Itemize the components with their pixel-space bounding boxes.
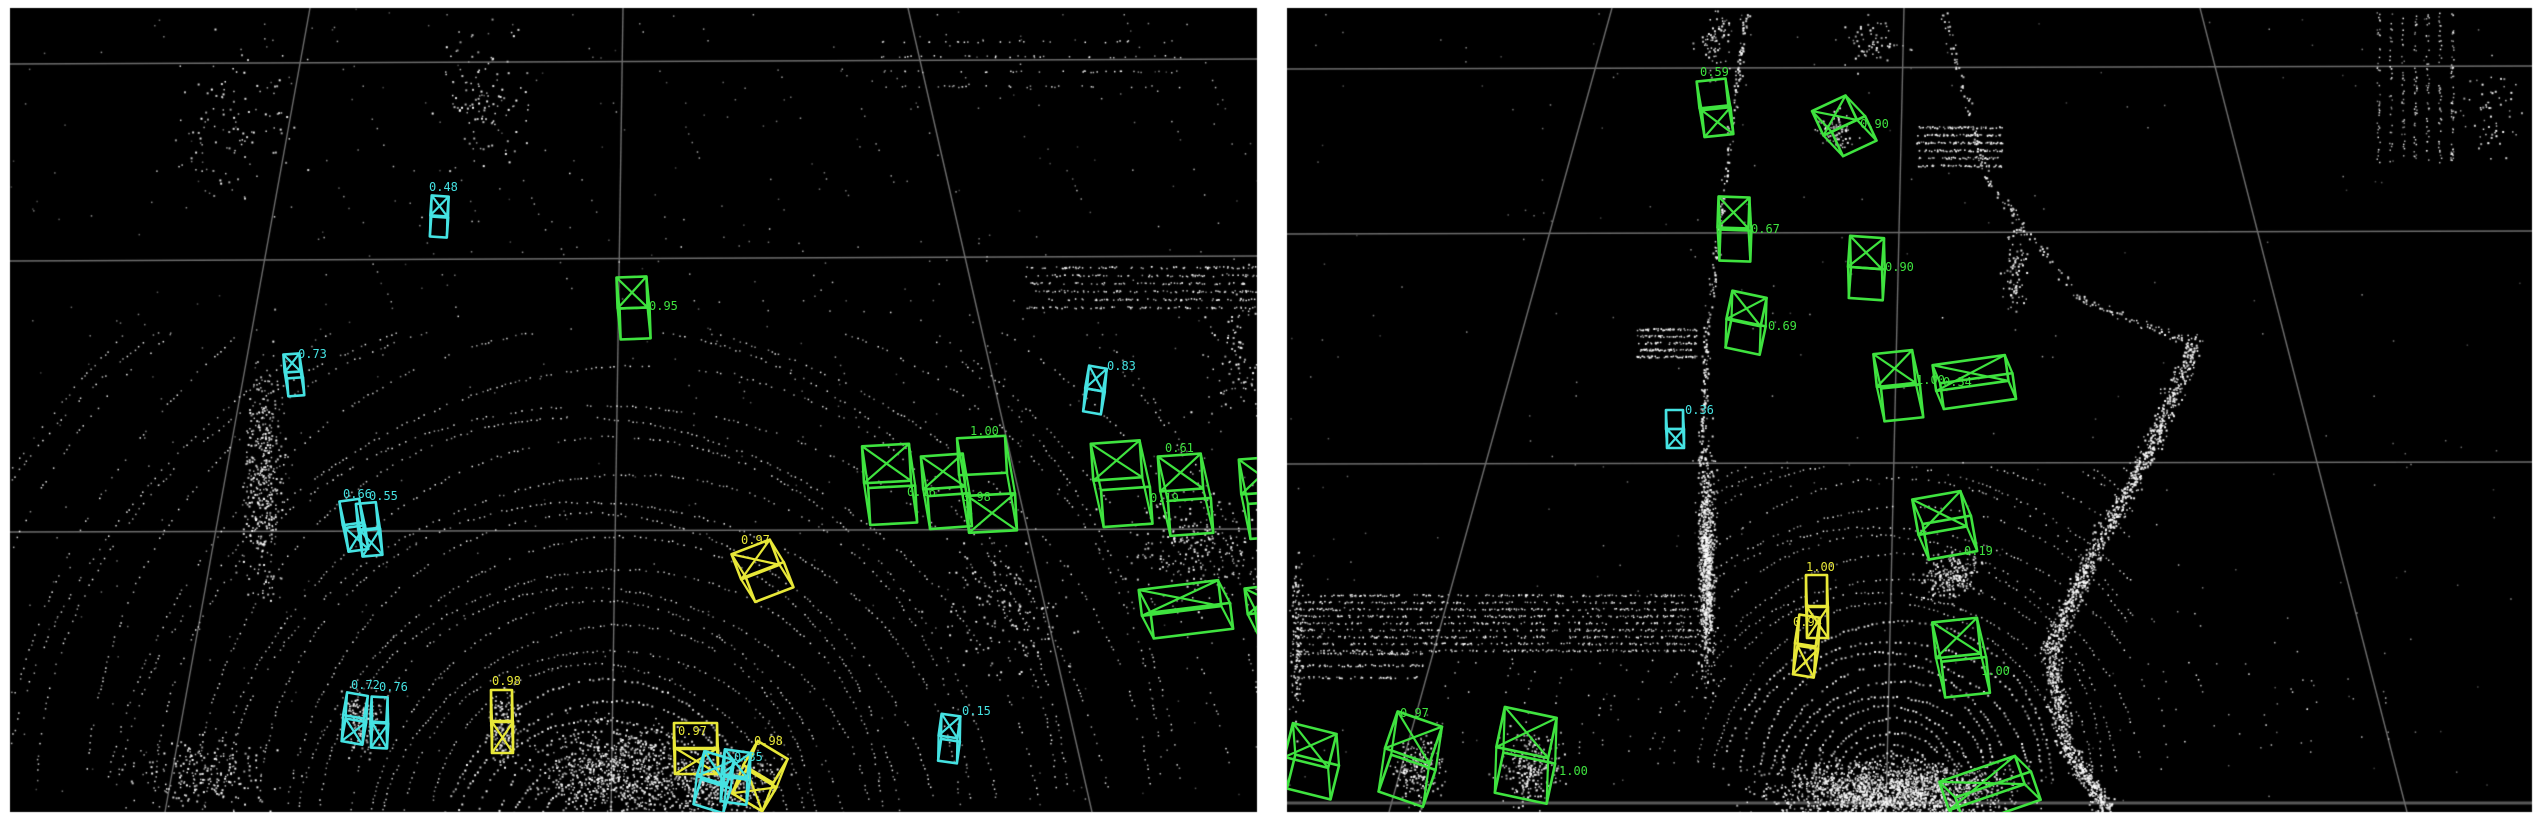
dual-lidar-detection-view: 0.480.950.730.660.550.720.760.980.970.97… <box>0 0 2542 820</box>
lidar-viewport-left[interactable] <box>10 8 1257 812</box>
lidar-viewport-right[interactable] <box>1287 8 2532 812</box>
